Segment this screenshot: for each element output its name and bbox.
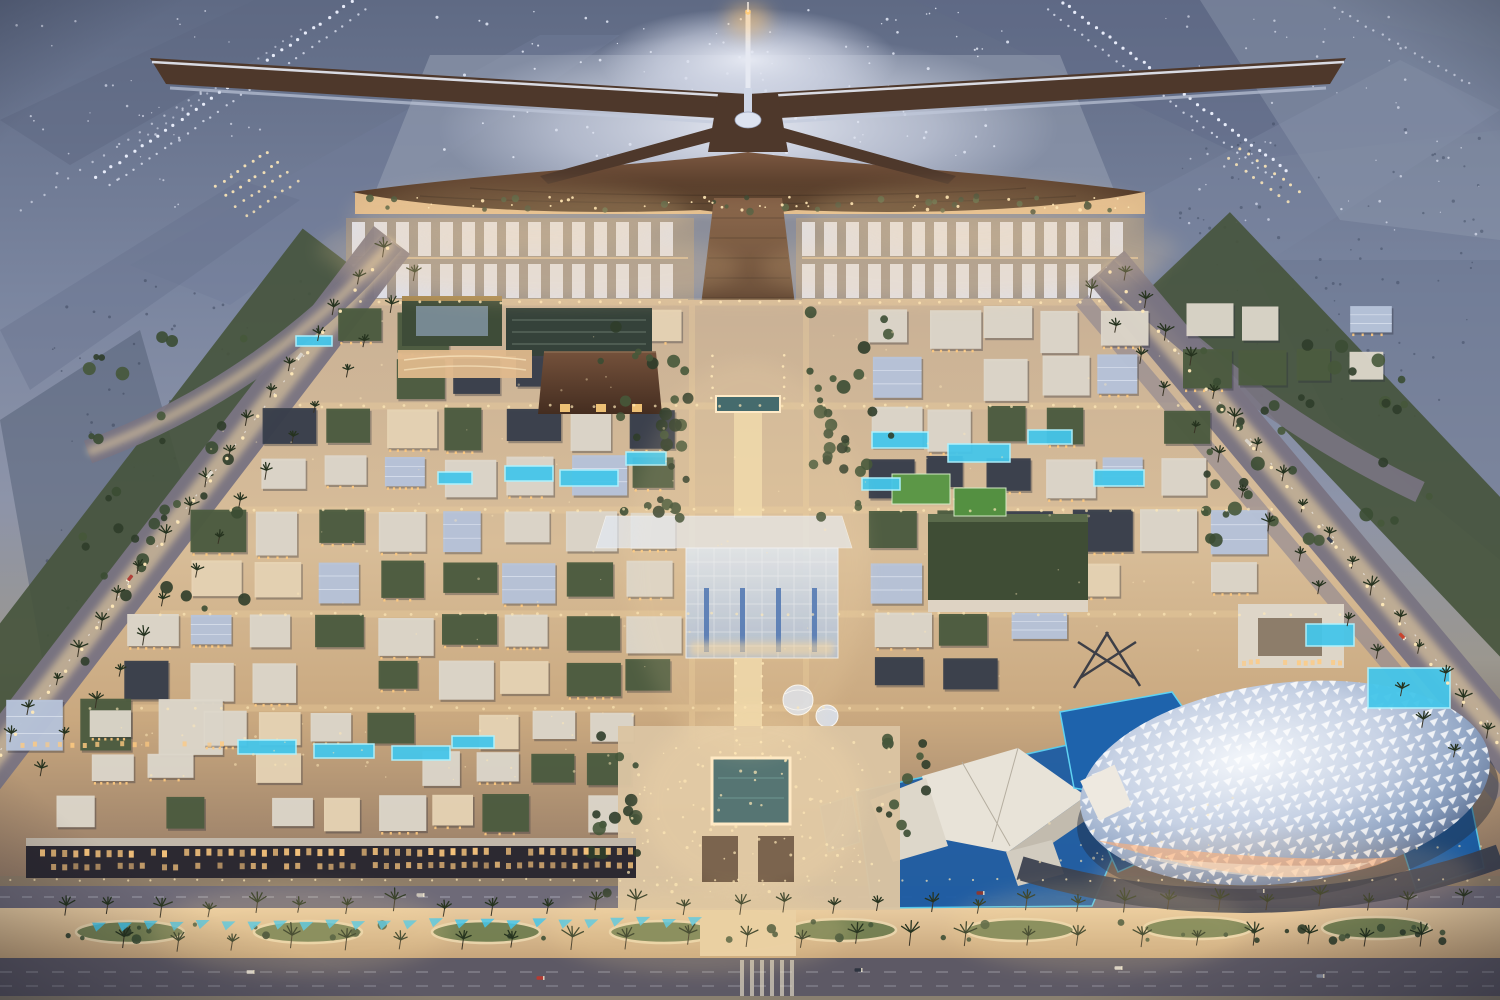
vignette <box>0 0 1500 1000</box>
screenshot-root <box>0 0 1500 1000</box>
scene-airport-city-aerial <box>0 0 1500 1000</box>
